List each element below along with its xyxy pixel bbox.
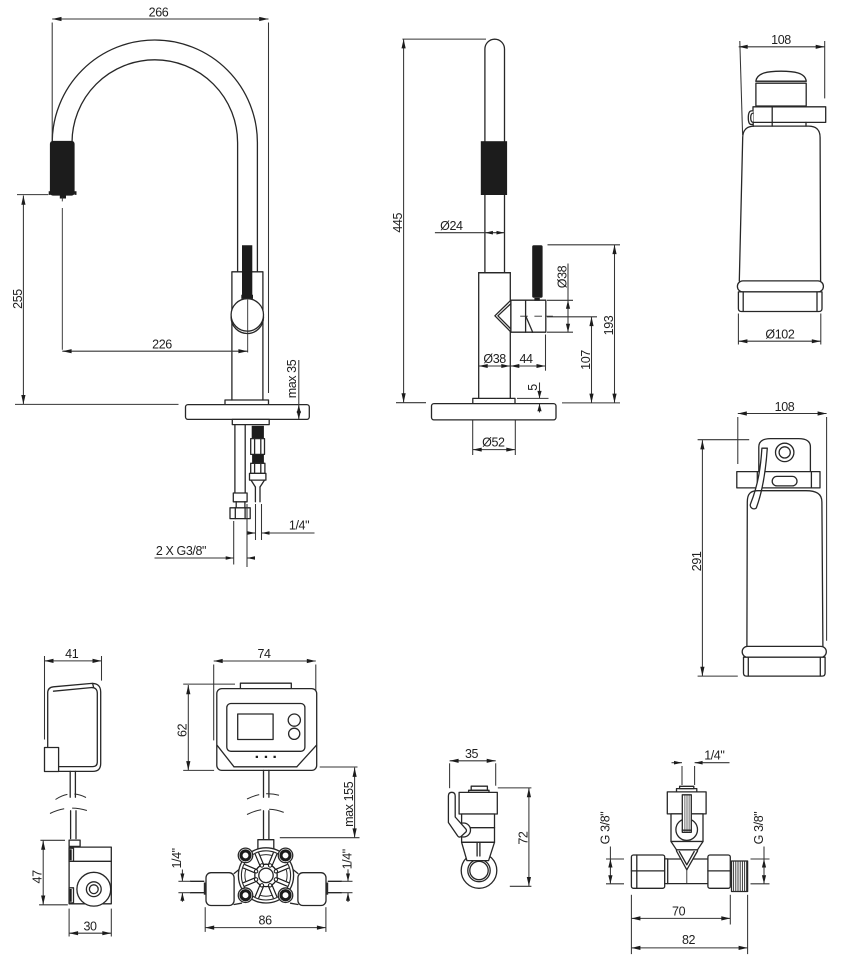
svg-text:107: 107 bbox=[579, 350, 593, 370]
svg-text:G 3/8": G 3/8" bbox=[752, 812, 766, 845]
svg-text:44: 44 bbox=[519, 352, 533, 366]
svg-text:30: 30 bbox=[83, 919, 97, 933]
svg-text:86: 86 bbox=[259, 914, 273, 928]
svg-text:35: 35 bbox=[465, 747, 479, 761]
svg-text:Ø38: Ø38 bbox=[555, 265, 569, 288]
svg-text:72: 72 bbox=[516, 831, 530, 845]
svg-text:74: 74 bbox=[257, 647, 271, 661]
svg-text:Ø52: Ø52 bbox=[482, 436, 505, 450]
svg-text:47: 47 bbox=[31, 870, 45, 884]
svg-text:266: 266 bbox=[149, 6, 169, 20]
svg-text:41: 41 bbox=[65, 647, 79, 661]
svg-text:226: 226 bbox=[152, 338, 172, 352]
svg-text:1/4": 1/4" bbox=[289, 519, 309, 533]
svg-text:108: 108 bbox=[771, 33, 791, 47]
svg-text:max 155: max 155 bbox=[342, 781, 356, 827]
svg-text:max 35: max 35 bbox=[285, 359, 299, 398]
svg-text:70: 70 bbox=[672, 904, 686, 918]
svg-text:445: 445 bbox=[391, 213, 405, 233]
svg-text:1/4": 1/4" bbox=[170, 848, 184, 868]
svg-text:1/4": 1/4" bbox=[704, 749, 724, 763]
svg-text:Ø102: Ø102 bbox=[765, 327, 794, 341]
svg-text:255: 255 bbox=[11, 289, 25, 309]
svg-text:Ø24: Ø24 bbox=[440, 219, 463, 233]
svg-text:1/4": 1/4" bbox=[341, 849, 355, 869]
svg-text:108: 108 bbox=[775, 400, 795, 414]
svg-text:5: 5 bbox=[526, 384, 540, 391]
svg-text:291: 291 bbox=[690, 551, 704, 571]
svg-text:82: 82 bbox=[682, 933, 696, 947]
svg-text:Ø38: Ø38 bbox=[483, 352, 506, 366]
svg-text:62: 62 bbox=[176, 723, 190, 737]
svg-text:2 X G3/8": 2 X G3/8" bbox=[156, 544, 206, 558]
svg-text:G 3/8": G 3/8" bbox=[598, 812, 612, 845]
svg-text:193: 193 bbox=[602, 315, 616, 335]
